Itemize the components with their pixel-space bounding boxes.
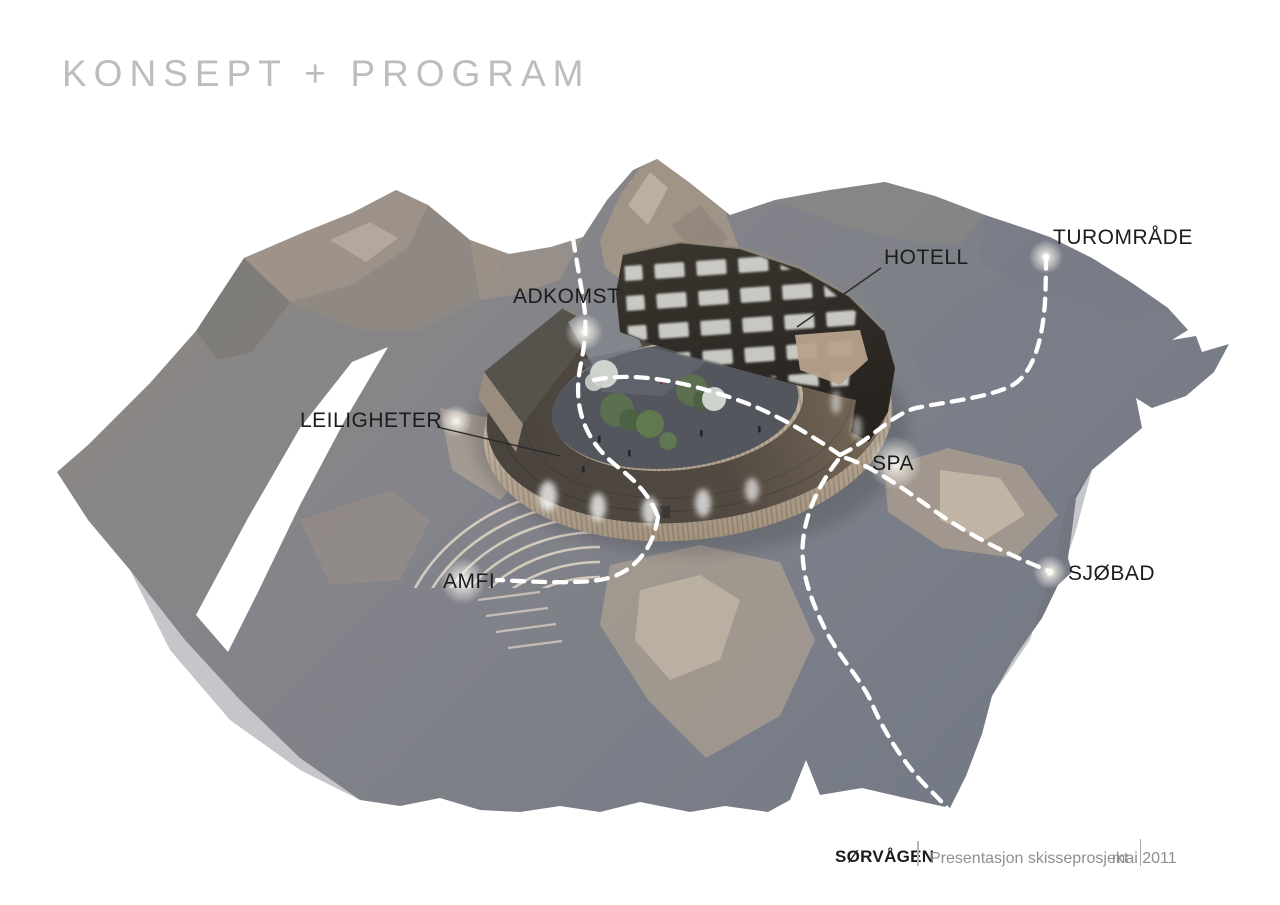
label-amfi: AMFI — [443, 570, 495, 594]
concept-rendering — [0, 0, 1280, 905]
label-sjobad: SJØBAD — [1068, 562, 1155, 586]
label-adkomst: ADKOMST — [513, 285, 620, 309]
label-spa: SPA — [872, 452, 914, 476]
label-turomrade: TUROMRÅDE — [1053, 226, 1193, 250]
adkomst-marker — [565, 313, 603, 351]
label-hotell: HOTELL — [884, 246, 969, 270]
presentation-slide: KONSEPT + PROGRAM — [0, 0, 1280, 905]
label-leiligheter: LEILIGHETER — [300, 409, 442, 433]
ridge-marker — [440, 405, 472, 437]
